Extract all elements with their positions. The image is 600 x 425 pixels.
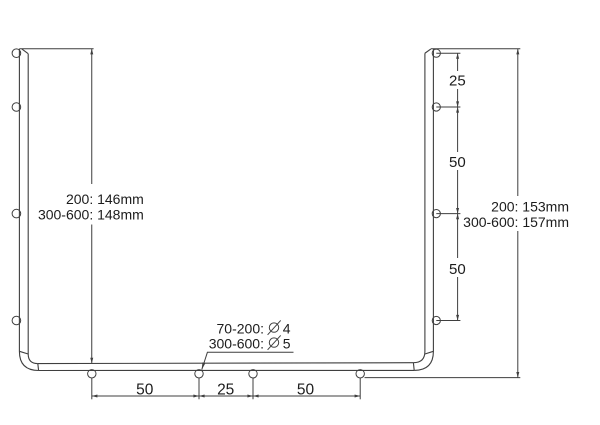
- svg-text:50: 50: [449, 154, 466, 171]
- svg-text:200: 146mm: 200: 146mm: [66, 191, 144, 207]
- svg-text:70-200:: 70-200:: [217, 320, 264, 336]
- svg-text:300-600:: 300-600:: [209, 335, 264, 351]
- svg-text:25: 25: [449, 73, 466, 90]
- svg-text:25: 25: [217, 382, 234, 399]
- svg-text:300-600: 148mm: 300-600: 148mm: [38, 207, 144, 223]
- svg-text:200: 153mm: 200: 153mm: [491, 198, 569, 214]
- svg-text:4: 4: [283, 320, 291, 336]
- svg-text:300-600: 157mm: 300-600: 157mm: [463, 214, 569, 230]
- svg-text:50: 50: [449, 261, 466, 278]
- svg-text:50: 50: [297, 382, 315, 399]
- svg-text:50: 50: [136, 382, 154, 399]
- svg-text:5: 5: [283, 335, 291, 351]
